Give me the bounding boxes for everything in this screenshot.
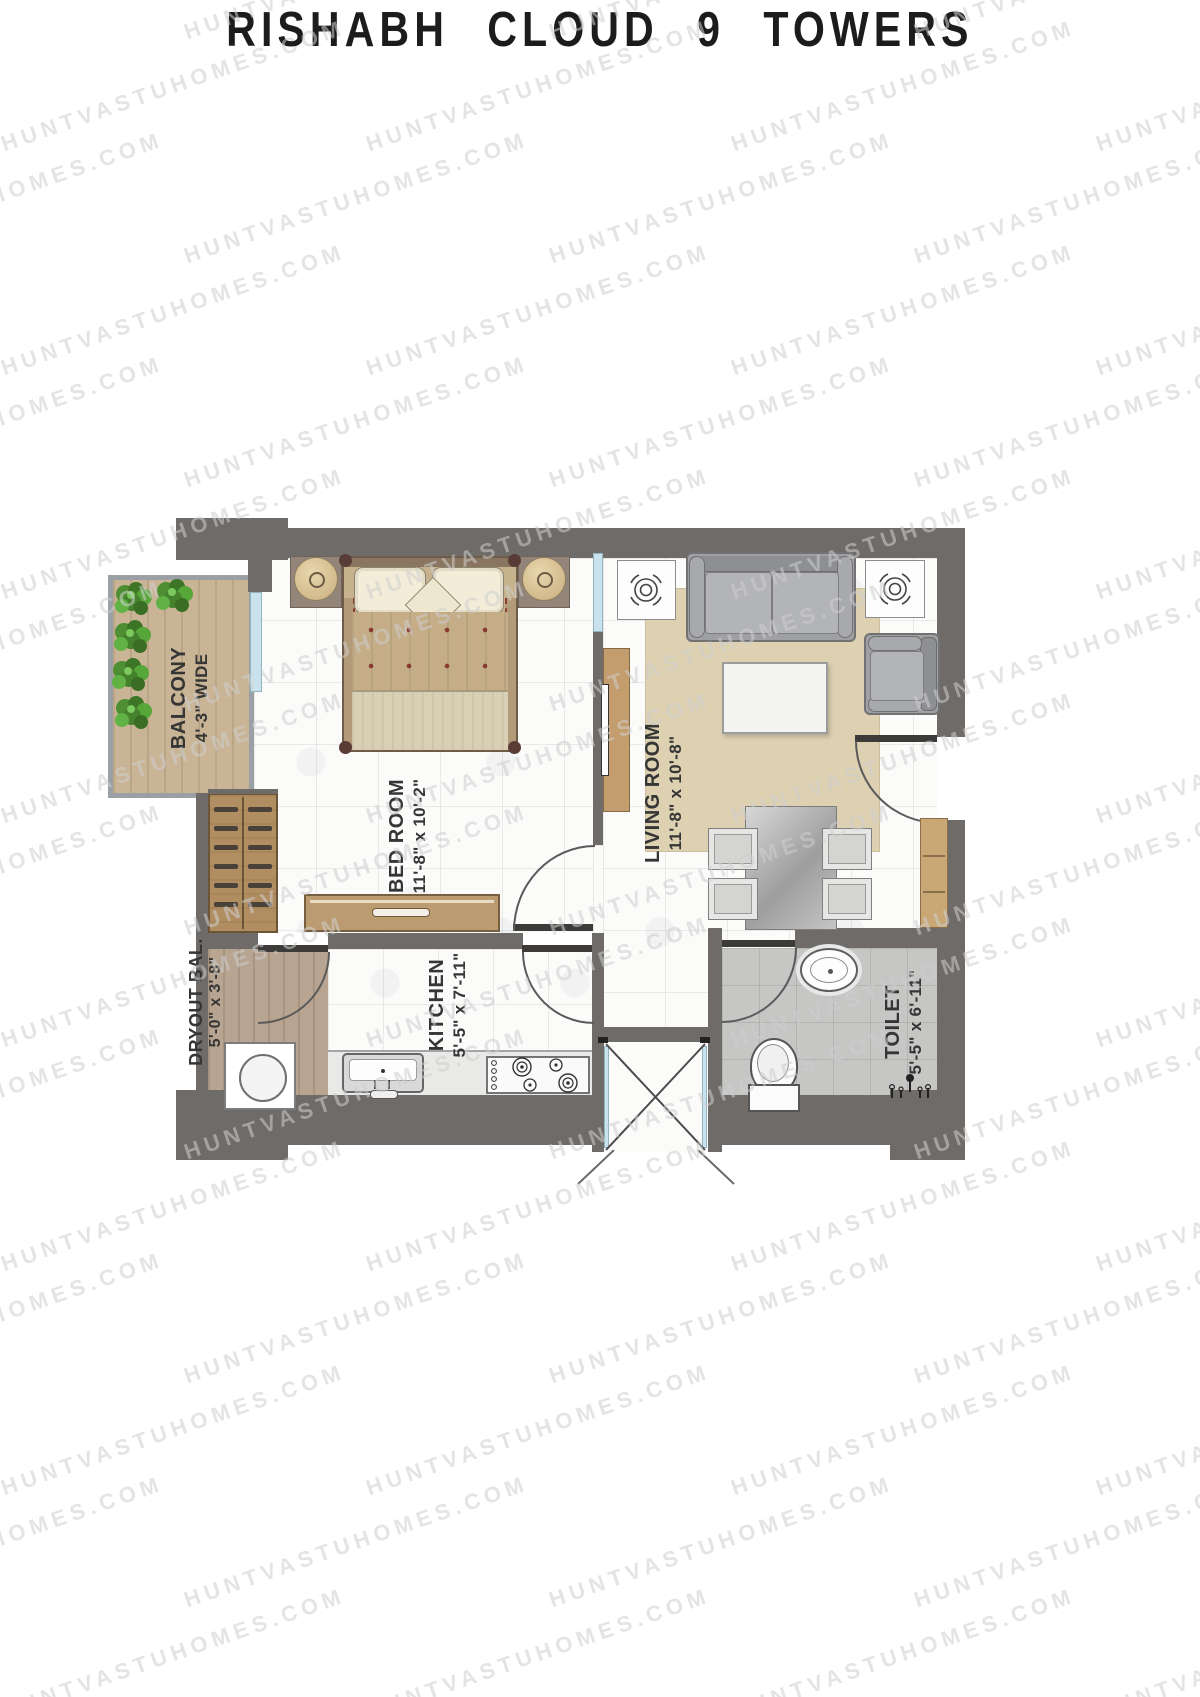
sideboard (920, 818, 948, 928)
kitchen-sink (342, 1053, 424, 1093)
main-door-cross-icon (604, 1042, 707, 1152)
side-table (865, 560, 925, 618)
wall (176, 518, 288, 560)
kitchen-door-leaf (522, 945, 592, 952)
soap-dish (370, 1090, 398, 1099)
bedroom-label: BED ROOM 11'-8" x 10'-2" (386, 779, 430, 894)
wall (937, 528, 965, 737)
bed-post (508, 741, 521, 754)
bed-foot-throw (352, 690, 508, 750)
wall (592, 1042, 604, 1152)
wall (208, 789, 278, 794)
balcony-window (250, 592, 262, 692)
shower-fittings-icon (886, 1072, 934, 1102)
balcony-label: BALCONY 4'-3" WIDE (168, 647, 212, 749)
armchair (864, 633, 940, 715)
sofa (686, 552, 856, 642)
page-title-wrap: RISHABH CLOUD 9 TOWERS (0, 2, 1200, 58)
toilet-label: TOILET 5'-5" x 6'-11" (882, 970, 926, 1075)
dryout-balcony-label: DRYOUT BAL. 5'-0" x 3'-8" (186, 938, 226, 1066)
entry-mark-icon (576, 1150, 616, 1186)
dining-chair (708, 878, 758, 920)
page: RISHABH CLOUD 9 TOWERS (0, 0, 1200, 1697)
wall (248, 558, 272, 592)
dresser (304, 894, 500, 932)
toilet-door-leaf (722, 940, 795, 947)
entry-mark-icon (696, 1150, 736, 1186)
wall (288, 1095, 592, 1145)
wash-basin (800, 948, 858, 992)
tv-screen (601, 684, 609, 776)
plant-icon (114, 582, 154, 618)
dining-chair (822, 828, 872, 870)
wall (328, 933, 523, 949)
plant-icon (114, 696, 154, 732)
washing-machine (224, 1042, 296, 1110)
wall (795, 928, 937, 948)
stove-icon (486, 1056, 590, 1094)
living-room-label: LIVING ROOM 11'-8" x 10'-8" (642, 723, 686, 863)
drawer-handle (372, 908, 430, 917)
dryout-door-leaf (258, 945, 328, 952)
table-lamp-icon (294, 557, 338, 601)
fan-symbol-icon (873, 567, 917, 611)
floor-plan: BALCONY 4'-3" WIDE BED ROOM 11'-8" x 10'… (0, 0, 1200, 1697)
bed-post (339, 741, 352, 754)
coffee-table (722, 662, 828, 734)
fan-symbol-icon (624, 568, 668, 612)
bed-post (339, 554, 352, 567)
dining-chair (822, 878, 872, 920)
bed-post (508, 554, 521, 567)
double-bed (342, 556, 518, 752)
wardrobe (208, 793, 278, 933)
dining-chair (708, 828, 758, 870)
glazed-partition (593, 553, 603, 632)
plant-icon (113, 620, 153, 656)
kitchen-label: KITCHEN 5'-5" x 7'-11" (426, 953, 470, 1058)
wc-toilet (748, 1038, 796, 1094)
plant-icon (155, 579, 195, 615)
plant-icon (111, 658, 151, 694)
table-lamp-icon (522, 557, 566, 601)
blanket (352, 612, 508, 690)
page-title: RISHABH CLOUD 9 TOWERS (226, 2, 973, 58)
side-table (617, 560, 676, 620)
